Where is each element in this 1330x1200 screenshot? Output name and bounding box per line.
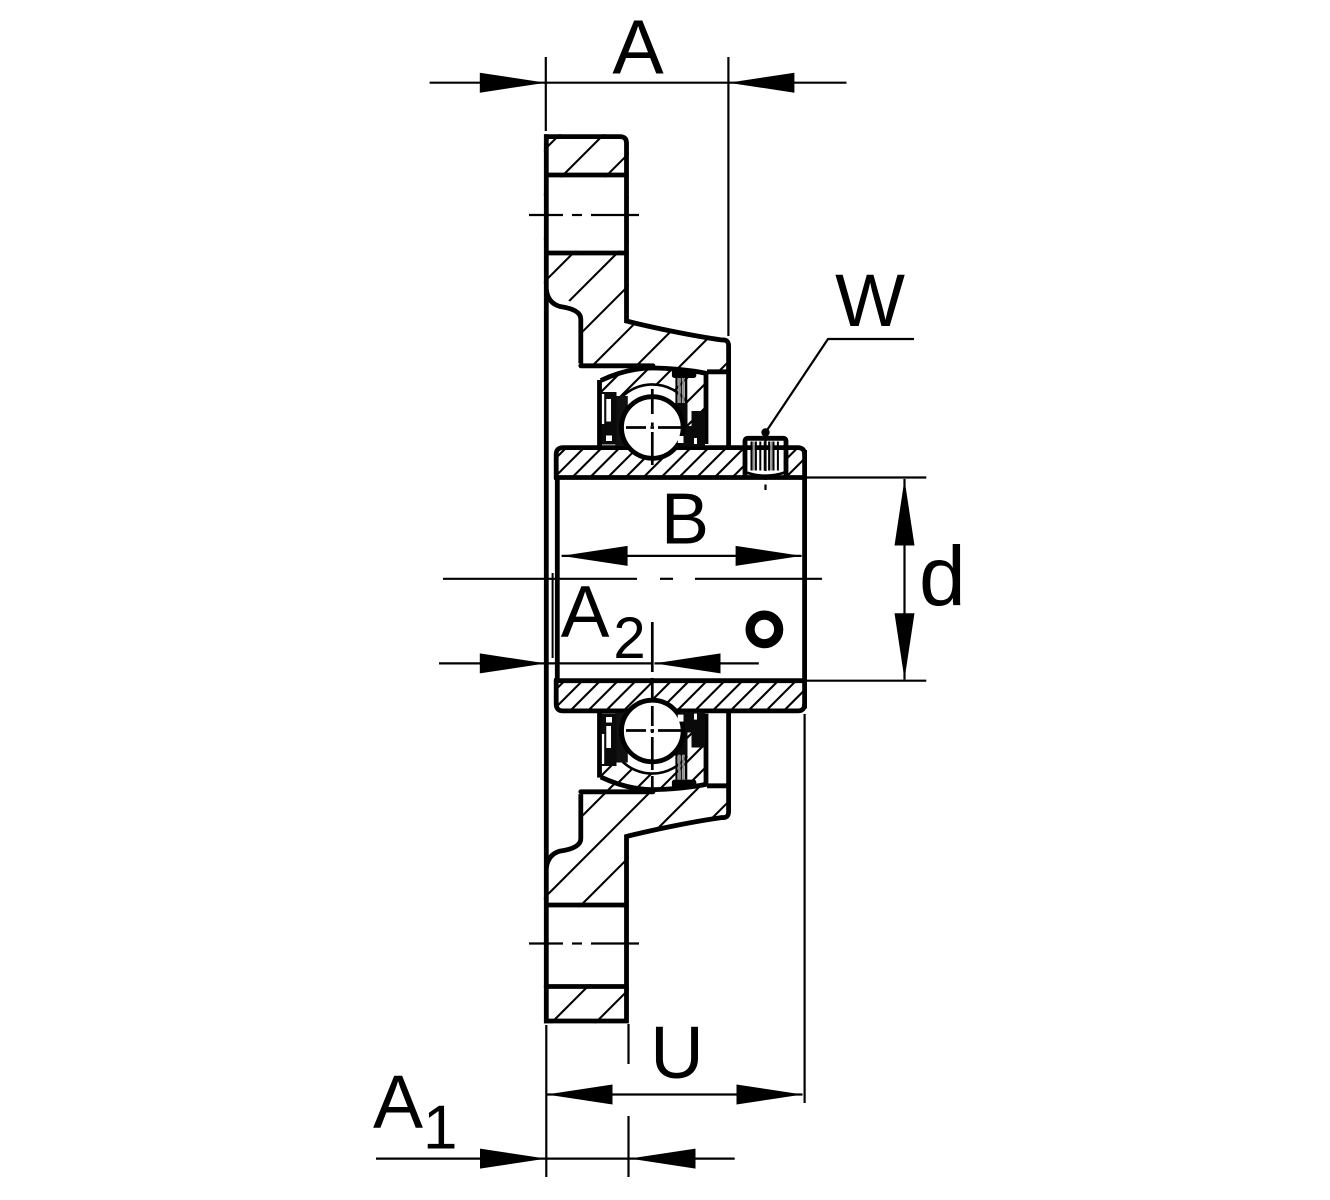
svg-text:U: U: [650, 1011, 703, 1094]
svg-text:B: B: [661, 480, 709, 560]
svg-text:d: d: [919, 529, 966, 623]
svg-text:A: A: [612, 5, 664, 91]
svg-text:W: W: [835, 259, 905, 342]
